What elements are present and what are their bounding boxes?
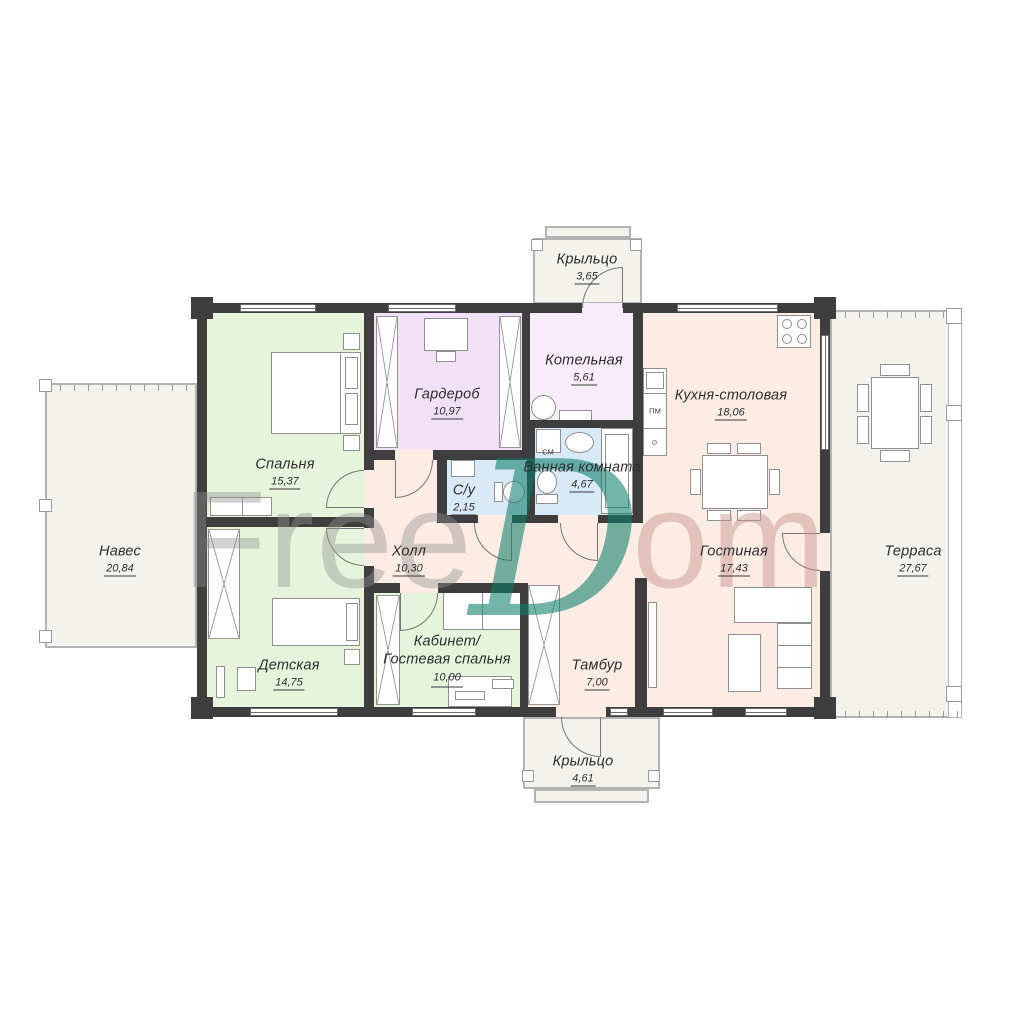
nightstand <box>343 333 360 350</box>
room-area-value: 5,61 <box>571 372 596 386</box>
room-area-value: 10,97 <box>431 406 463 420</box>
room-label-children: Детская14,75 <box>258 658 319 691</box>
room-label-canopy: Навес20,84 <box>99 544 141 577</box>
door-leaf <box>597 523 598 561</box>
porch-post <box>531 239 543 251</box>
wall-bedroom-children <box>207 517 364 527</box>
room-area: 10,00 <box>381 672 513 688</box>
terrace-post <box>946 308 962 324</box>
nightstand <box>344 649 360 665</box>
chair <box>707 443 731 454</box>
room-area-value: 2,15 <box>451 502 476 516</box>
window-wardrobe-top <box>388 304 456 312</box>
window-vestibule <box>610 708 628 716</box>
room-label-vestibule: Тамбур7,00 <box>572 658 623 691</box>
closet-vestibule <box>528 585 560 705</box>
room-area: 18,06 <box>675 407 787 421</box>
wall-wc-left <box>437 460 447 523</box>
wall-office-top <box>364 583 528 593</box>
room-name: Котельная <box>545 353 623 369</box>
door-gap-wardrobe <box>395 450 433 460</box>
room-area: 15,37 <box>255 476 314 490</box>
wall-corner-br <box>814 697 836 719</box>
room-name: Детская <box>258 658 319 674</box>
door-leaf <box>511 523 512 561</box>
room-area-value: 4,67 <box>569 479 594 493</box>
room-name: Терраса <box>884 544 941 560</box>
room-label-terrace: Терраса27,67 <box>884 544 941 577</box>
room-label-office: Кабинет/Гостевая спальня10,00 <box>381 633 513 688</box>
wall-exterior-left <box>197 303 207 717</box>
dressing-table <box>424 318 468 351</box>
desk <box>237 667 256 691</box>
room-area-value: 7,00 <box>584 677 609 691</box>
wall-corner-tr <box>814 297 836 319</box>
door-gap-terrace <box>820 533 830 571</box>
wall-corner-tl <box>191 297 213 319</box>
room-area: 4,61 <box>553 773 614 787</box>
closet-wardrobe-left <box>376 316 398 448</box>
room-label-kitchen: Кухня-столовая18,06 <box>675 388 787 421</box>
terrace-post <box>946 686 962 702</box>
wc-sink <box>451 460 475 477</box>
oven-dot <box>652 440 657 445</box>
chair <box>920 384 932 412</box>
door-leaf <box>600 717 601 757</box>
terrace-post <box>946 405 962 421</box>
wall-wc-bath-bottom <box>437 515 643 523</box>
room-name: Крыльцо <box>553 754 614 770</box>
room-name: Крыльцо <box>557 252 618 268</box>
room-name: Гардероб <box>414 387 480 403</box>
room-label-wc: С/у2,15 <box>451 483 476 516</box>
room-area: 20,84 <box>99 563 141 577</box>
sofa-line <box>777 645 812 646</box>
room-name: Ванная комната <box>523 460 640 476</box>
door-leaf <box>622 267 623 308</box>
bath-sink <box>565 432 594 453</box>
desk-item <box>455 691 485 700</box>
wall-office-right <box>520 593 528 707</box>
nightstand <box>343 435 360 451</box>
room-area: 5,61 <box>545 372 623 386</box>
chair <box>857 384 869 412</box>
window-living-2 <box>745 708 787 716</box>
window-kitchen-top <box>677 304 778 312</box>
room-area-value: 10,00 <box>431 672 463 688</box>
room-name: С/у <box>451 483 476 499</box>
door-gap-bedroom <box>364 470 374 508</box>
burner <box>782 319 792 329</box>
room-area: 27,67 <box>884 563 941 577</box>
wall-wardrobe-bottom <box>364 450 530 460</box>
terrace-table <box>871 377 919 449</box>
room-area-value: 27,67 <box>897 563 929 577</box>
canopy-post <box>39 499 52 512</box>
room-name: Спальня <box>255 457 314 473</box>
porch-post <box>522 770 534 782</box>
room-area: 3,65 <box>557 271 618 285</box>
room-name: Кабинет/Гостевая спальня <box>381 633 513 669</box>
chair <box>769 469 780 495</box>
room-area-value: 3,65 <box>574 271 599 285</box>
room-area: 4,67 <box>523 479 640 493</box>
sofa-chaise <box>777 623 812 689</box>
stool <box>436 351 456 362</box>
room-area-value: 15,37 <box>269 476 301 490</box>
terrace-railing <box>948 310 962 718</box>
canopy-area <box>45 383 197 648</box>
room-name: Кухня-столовая <box>675 388 787 404</box>
floor-plan: Крыльцо3,65Спальня15,37Гардероб10,97Коте… <box>0 0 1024 1024</box>
wall-corner-bl <box>191 697 213 719</box>
sofa-back <box>734 587 812 623</box>
canopy-beam <box>46 384 196 391</box>
bed-line <box>340 352 341 434</box>
kitchen-sink <box>646 372 664 389</box>
window-kitchen-side <box>821 335 829 450</box>
room-area: 10,97 <box>414 406 480 420</box>
pillow <box>345 357 358 389</box>
door-gap-children <box>364 528 374 566</box>
room-area: 7,00 <box>572 677 623 691</box>
room-label-living: Гостиная17,43 <box>700 544 768 577</box>
closet-children <box>208 529 240 639</box>
wc-toilet-bowl <box>503 481 525 503</box>
wall-boiler-bottom <box>522 420 643 428</box>
room-area-value: 17,43 <box>718 563 750 577</box>
room-name: Холл <box>392 544 426 560</box>
door-gap-bathroom <box>558 515 598 523</box>
door-leaf <box>326 507 364 508</box>
dresser <box>210 497 272 516</box>
chair <box>690 469 701 495</box>
dresser-line <box>242 497 243 516</box>
boiler-unit <box>531 395 556 420</box>
terrace-beam-bottom <box>831 711 960 718</box>
terrace-beam-top <box>831 311 960 318</box>
room-label-bedroom: Спальня15,37 <box>255 457 314 490</box>
desk-monitor <box>216 666 225 698</box>
pillow <box>345 393 358 425</box>
window-office <box>412 708 476 716</box>
chair <box>880 364 910 376</box>
dining-table <box>702 455 768 509</box>
door-leaf <box>326 528 364 529</box>
room-label-porch-bottom: Крыльцо4,61 <box>553 754 614 787</box>
chair <box>920 416 932 444</box>
wall-vestibule-right <box>635 578 647 707</box>
chair <box>737 510 761 521</box>
door-gap-vestibule <box>556 707 606 717</box>
dishwasher-label: ПМ <box>649 407 661 416</box>
burner <box>797 319 807 329</box>
closet-wardrobe-right <box>499 316 521 448</box>
chair <box>857 416 869 444</box>
room-area-value: 10,30 <box>393 563 425 577</box>
sofa-line <box>482 592 483 630</box>
window-living-1 <box>663 708 713 716</box>
room-area-value: 4,61 <box>570 773 595 787</box>
counter-line <box>643 393 667 394</box>
room-name: Гостиная <box>700 544 768 560</box>
door-leaf <box>782 533 820 534</box>
canopy-post <box>39 630 52 643</box>
room-area: 14,75 <box>258 677 319 691</box>
room-name: Тамбур <box>572 658 623 674</box>
room-area: 17,43 <box>700 563 768 577</box>
window-bedroom-top <box>240 304 316 312</box>
pillow <box>346 603 358 641</box>
room-label-boiler: Котельная5,61 <box>545 353 623 386</box>
room-area-value: 14,75 <box>273 677 305 691</box>
room-area-value: 18,06 <box>715 407 747 421</box>
porch-top-step <box>545 226 631 238</box>
window-children <box>250 708 338 716</box>
burner <box>782 334 792 344</box>
porch-bottom-step <box>534 789 649 803</box>
room-label-porch-top: Крыльцо3,65 <box>557 252 618 285</box>
sofa-line <box>777 667 812 668</box>
door-gap-office <box>400 583 438 593</box>
counter-line <box>643 428 667 429</box>
canopy-post <box>39 379 52 392</box>
burner <box>797 334 807 344</box>
wc-toilet-tank <box>494 482 503 502</box>
door-leaf <box>395 460 396 498</box>
coffee-table <box>728 634 761 692</box>
porch-post <box>648 770 660 782</box>
door-gap-wc <box>478 515 512 523</box>
washing-machine-label: СМ <box>542 448 554 457</box>
room-label-wardrobe: Гардероб10,97 <box>414 387 480 420</box>
chair <box>707 510 731 521</box>
room-name: Навес <box>99 544 141 560</box>
room-label-hall: Холл10,30 <box>392 544 426 577</box>
wall-bedrooms-vert <box>364 313 374 707</box>
room-area: 2,15 <box>451 502 476 516</box>
porch-post <box>630 239 642 251</box>
door-leaf <box>400 593 401 631</box>
room-area: 10,30 <box>392 563 426 577</box>
chair <box>737 443 761 454</box>
room-label-bathroom: Ванная комната4,67 <box>523 460 640 493</box>
toilet-tank <box>536 494 558 504</box>
room-area-value: 20,84 <box>104 563 136 577</box>
chair <box>880 450 910 462</box>
tv-panel <box>648 602 657 688</box>
